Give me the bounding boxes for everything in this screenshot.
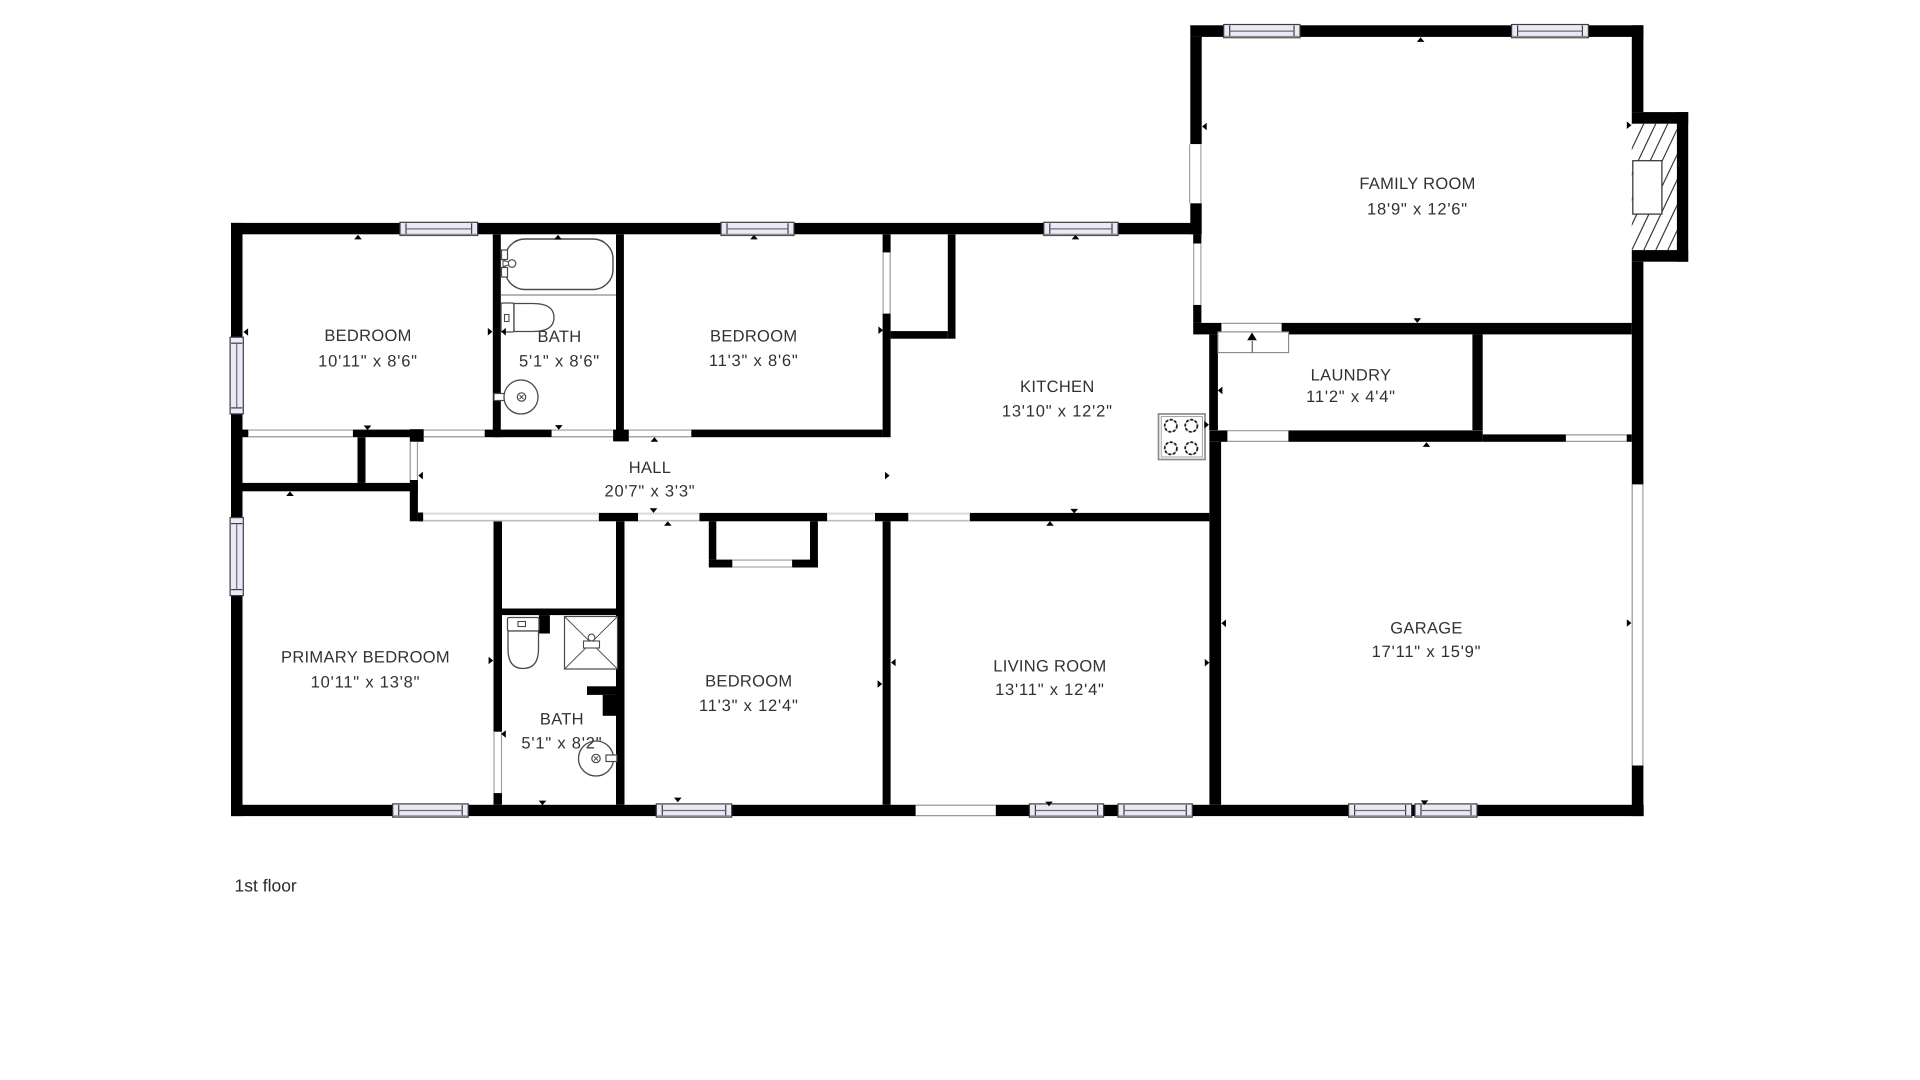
svg-text:5'1" x 8'6": 5'1" x 8'6": [519, 352, 600, 370]
svg-text:FAMILY ROOM: FAMILY ROOM: [1359, 175, 1475, 193]
svg-text:10'11" x 13'8": 10'11" x 13'8": [311, 674, 421, 692]
svg-text:1st floor: 1st floor: [235, 876, 297, 896]
svg-text:13'11" x 12'4": 13'11" x 12'4": [995, 681, 1105, 699]
svg-text:HALL: HALL: [629, 459, 671, 477]
svg-text:LAUNDRY: LAUNDRY: [1311, 366, 1392, 384]
svg-text:17'11" x 15'9": 17'11" x 15'9": [1372, 643, 1482, 661]
svg-text:BEDROOM: BEDROOM: [705, 673, 792, 691]
svg-text:PRIMARY BEDROOM: PRIMARY BEDROOM: [281, 648, 450, 666]
svg-text:20'7" x 3'3": 20'7" x 3'3": [605, 483, 696, 501]
svg-text:BATH: BATH: [540, 711, 584, 729]
svg-text:BATH: BATH: [538, 328, 582, 346]
svg-text:BEDROOM: BEDROOM: [324, 327, 411, 345]
svg-text:GARAGE: GARAGE: [1390, 619, 1462, 637]
svg-text:5'1" x 8'2": 5'1" x 8'2": [521, 735, 602, 753]
svg-text:10'11" x 8'6": 10'11" x 8'6": [318, 353, 418, 371]
svg-text:KITCHEN: KITCHEN: [1020, 378, 1095, 396]
svg-text:13'10" x 12'2": 13'10" x 12'2": [1002, 403, 1113, 421]
svg-text:11'3" x 12'4": 11'3" x 12'4": [699, 697, 799, 715]
svg-text:18'9" x 12'6": 18'9" x 12'6": [1367, 200, 1468, 218]
svg-text:11'2" x 4'4": 11'2" x 4'4": [1306, 388, 1396, 406]
svg-text:BEDROOM: BEDROOM: [710, 328, 797, 346]
svg-text:LIVING ROOM: LIVING ROOM: [993, 658, 1106, 676]
svg-text:11'3" x 8'6": 11'3" x 8'6": [709, 352, 799, 370]
